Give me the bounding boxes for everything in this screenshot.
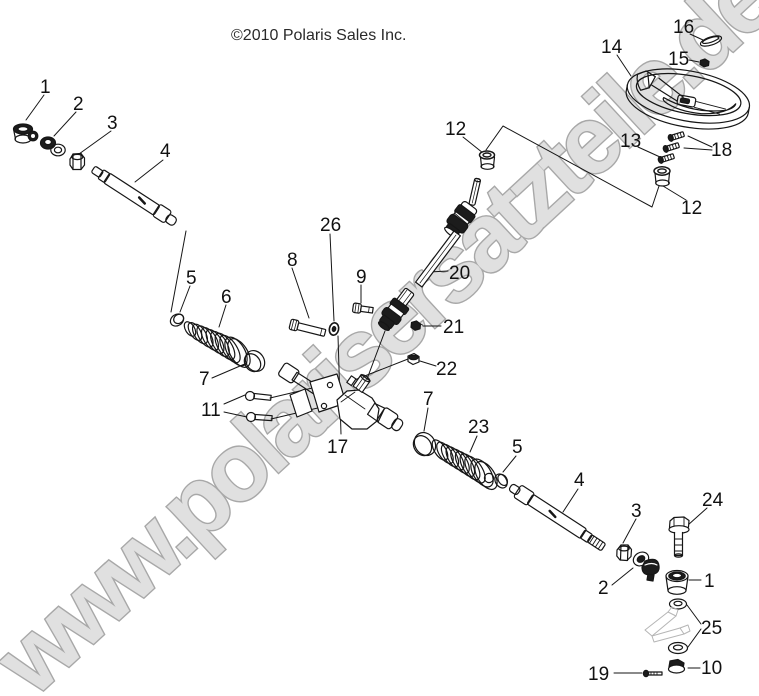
svg-text:2: 2 [73, 94, 84, 115]
svg-text:5: 5 [512, 437, 523, 458]
svg-text:25: 25 [701, 618, 722, 639]
svg-text:18: 18 [711, 140, 732, 161]
svg-text:8: 8 [287, 250, 298, 271]
svg-text:14: 14 [601, 37, 623, 58]
svg-text:1: 1 [40, 77, 51, 98]
svg-text:7: 7 [199, 369, 210, 390]
svg-text:24: 24 [702, 490, 724, 511]
svg-text:15: 15 [668, 49, 689, 70]
svg-text:1: 1 [704, 571, 715, 592]
svg-text:©2010 Polaris Sales Inc.: ©2010 Polaris Sales Inc. [231, 27, 406, 44]
svg-text:7: 7 [423, 389, 434, 410]
svg-text:5: 5 [186, 268, 197, 289]
svg-text:13: 13 [620, 131, 641, 152]
svg-text:19: 19 [588, 664, 609, 685]
svg-text:3: 3 [107, 113, 118, 134]
svg-text:12: 12 [445, 119, 466, 140]
svg-text:22: 22 [436, 359, 457, 380]
svg-text:21: 21 [443, 317, 464, 338]
svg-text:12: 12 [681, 198, 702, 219]
svg-text:20: 20 [449, 263, 470, 284]
svg-text:26: 26 [320, 215, 341, 236]
svg-text:23: 23 [468, 417, 489, 438]
svg-text:17: 17 [327, 437, 348, 458]
svg-text:6: 6 [221, 287, 232, 308]
svg-text:4: 4 [574, 470, 585, 491]
svg-text:4: 4 [160, 141, 171, 162]
svg-text:11: 11 [201, 400, 221, 421]
svg-text:9: 9 [356, 267, 367, 288]
svg-text:2: 2 [598, 578, 609, 599]
svg-text:10: 10 [701, 658, 722, 679]
svg-text:16: 16 [673, 17, 694, 38]
svg-text:3: 3 [631, 501, 642, 522]
svg-text:www.polarisersatzteile.de: www.polarisersatzteile.de [0, 0, 759, 696]
